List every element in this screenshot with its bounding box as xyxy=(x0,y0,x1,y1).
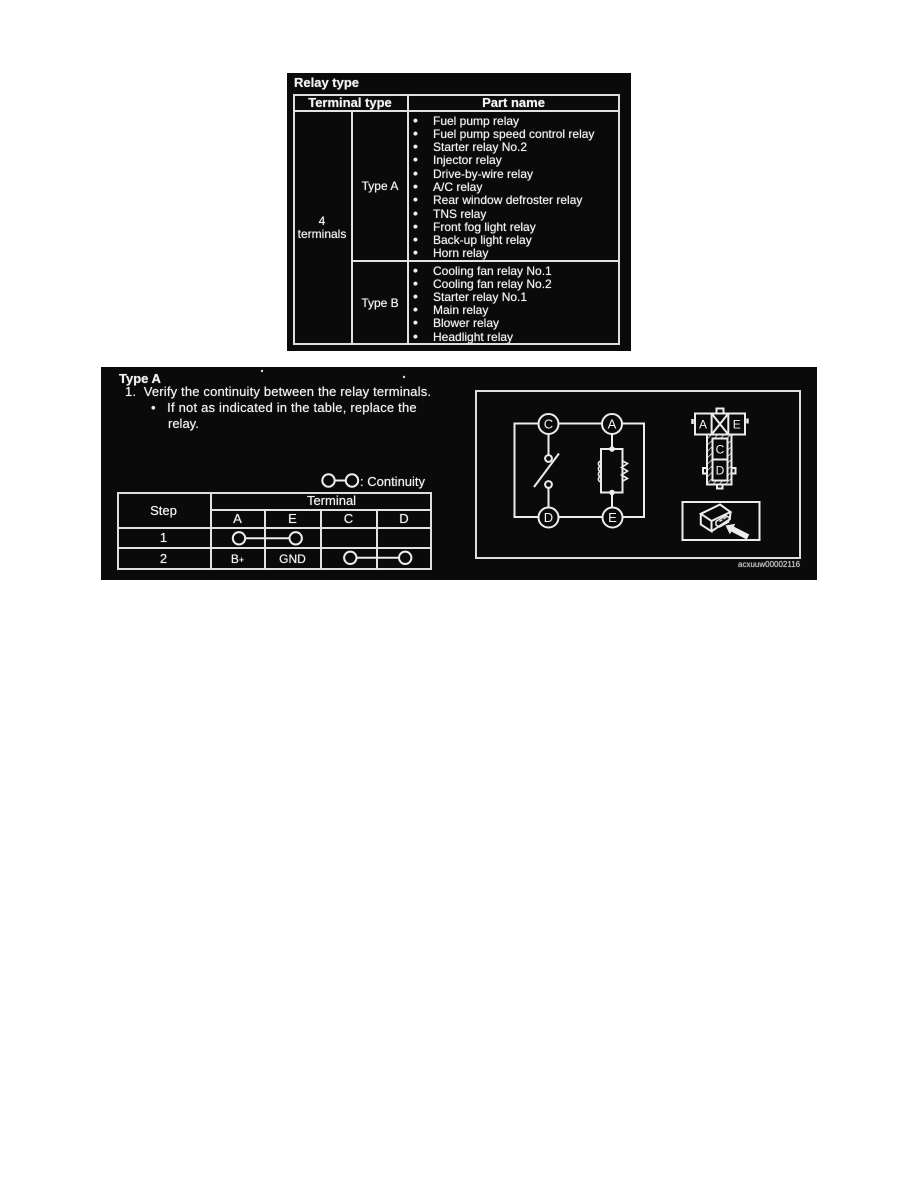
svg-text:A: A xyxy=(699,417,707,431)
svg-text:E: E xyxy=(733,417,741,431)
svg-text:A: A xyxy=(608,417,617,432)
svg-text:D: D xyxy=(544,510,553,525)
svg-text:E: E xyxy=(608,510,617,525)
svg-text:C: C xyxy=(544,417,553,432)
svg-text:C: C xyxy=(716,443,725,457)
svg-text:D: D xyxy=(716,464,725,478)
